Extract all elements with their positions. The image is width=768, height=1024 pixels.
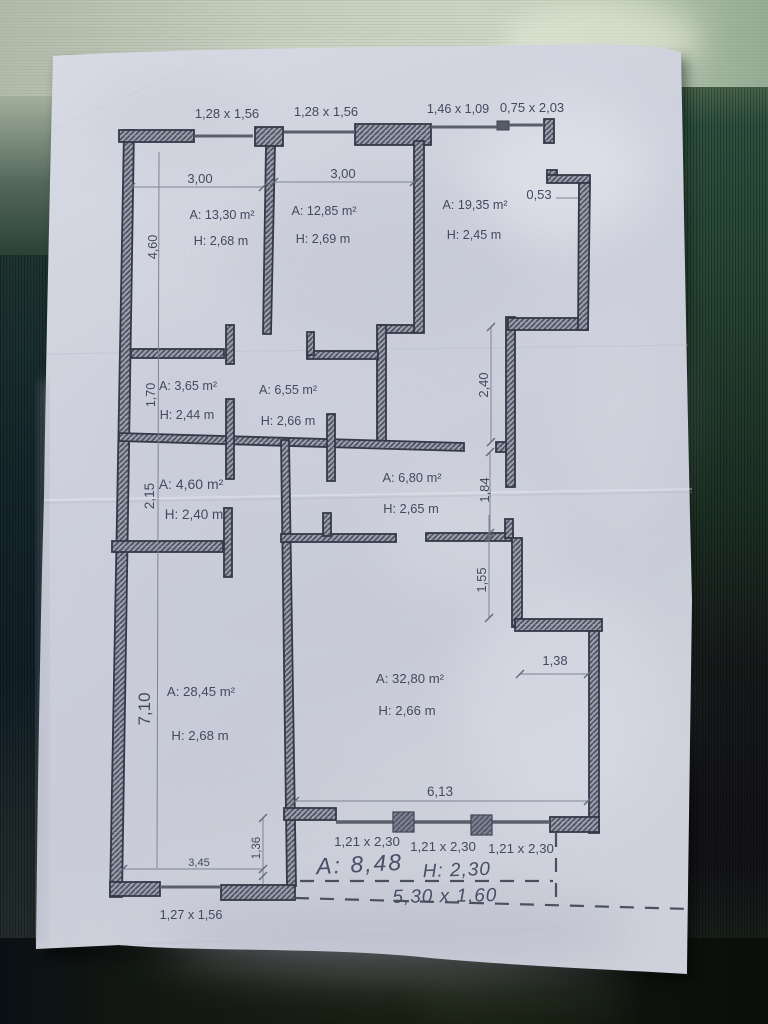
svg-text:3,00: 3,00 — [187, 171, 212, 186]
svg-text:1,46 x 1,09: 1,46 x 1,09 — [427, 102, 489, 116]
svg-text:1,84: 1,84 — [477, 477, 492, 502]
svg-text:H: 2,69 m: H: 2,69 m — [296, 232, 351, 246]
svg-text:A: 6,55 m²: A: 6,55 m² — [259, 383, 317, 397]
svg-text:1,55: 1,55 — [474, 567, 489, 592]
svg-text:A: 19,35 m²: A: 19,35 m² — [442, 198, 507, 212]
svg-text:1,70: 1,70 — [144, 383, 158, 407]
svg-text:A: 32,80 m²: A: 32,80 m² — [376, 671, 445, 686]
svg-text:H: 2,45 m: H: 2,45 m — [447, 228, 502, 242]
svg-text:0,53: 0,53 — [526, 187, 551, 202]
svg-text:1,21 x 2,30: 1,21 x 2,30 — [334, 834, 400, 849]
svg-text:0,75 x 2,03: 0,75 x 2,03 — [500, 100, 564, 115]
svg-text:5,30 x 1,60: 5,30 x 1,60 — [392, 885, 497, 908]
svg-text:A: 28,45 m²: A: 28,45 m² — [167, 684, 236, 699]
svg-text:A: 4,60 m²: A: 4,60 m² — [159, 476, 224, 492]
svg-text:7,10: 7,10 — [135, 692, 154, 725]
svg-text:A: 8,48: A: 8,48 — [314, 849, 404, 880]
svg-text:1,28 x 1,56: 1,28 x 1,56 — [294, 104, 358, 119]
svg-text:H: 2,44 m: H: 2,44 m — [160, 408, 215, 422]
svg-text:H: 2,66 m: H: 2,66 m — [261, 414, 316, 428]
svg-text:H: 2,30: H: 2,30 — [422, 859, 491, 882]
svg-text:2,15: 2,15 — [142, 483, 157, 509]
svg-text:H: 2,66 m: H: 2,66 m — [378, 703, 435, 718]
svg-text:3,00: 3,00 — [330, 166, 355, 181]
svg-text:3,45: 3,45 — [188, 857, 209, 869]
svg-text:2,40: 2,40 — [476, 372, 491, 397]
svg-text:4,60: 4,60 — [146, 235, 160, 259]
svg-text:1,21 x 2,30: 1,21 x 2,30 — [488, 841, 554, 856]
svg-text:1,28 x 1,56: 1,28 x 1,56 — [195, 106, 259, 121]
svg-text:6,13: 6,13 — [427, 784, 453, 799]
svg-text:1,38: 1,38 — [542, 653, 567, 668]
svg-text:1,27 x 1,56: 1,27 x 1,56 — [160, 908, 223, 922]
svg-text:A: 3,65 m²: A: 3,65 m² — [159, 379, 217, 393]
svg-text:1,21 x 2,30: 1,21 x 2,30 — [410, 839, 476, 854]
svg-text:H: 2,65 m: H: 2,65 m — [383, 501, 438, 516]
svg-text:H: 2,40 m: H: 2,40 m — [165, 507, 224, 522]
svg-text:H: 2,68 m: H: 2,68 m — [194, 234, 249, 248]
svg-text:1,36: 1,36 — [251, 837, 263, 859]
svg-text:H: 2,68 m: H: 2,68 m — [171, 728, 228, 743]
svg-text:A: 12,85 m²: A: 12,85 m² — [291, 204, 356, 218]
svg-text:A: 6,80 m²: A: 6,80 m² — [382, 470, 442, 485]
svg-text:A: 13,30 m²: A: 13,30 m² — [189, 208, 254, 222]
